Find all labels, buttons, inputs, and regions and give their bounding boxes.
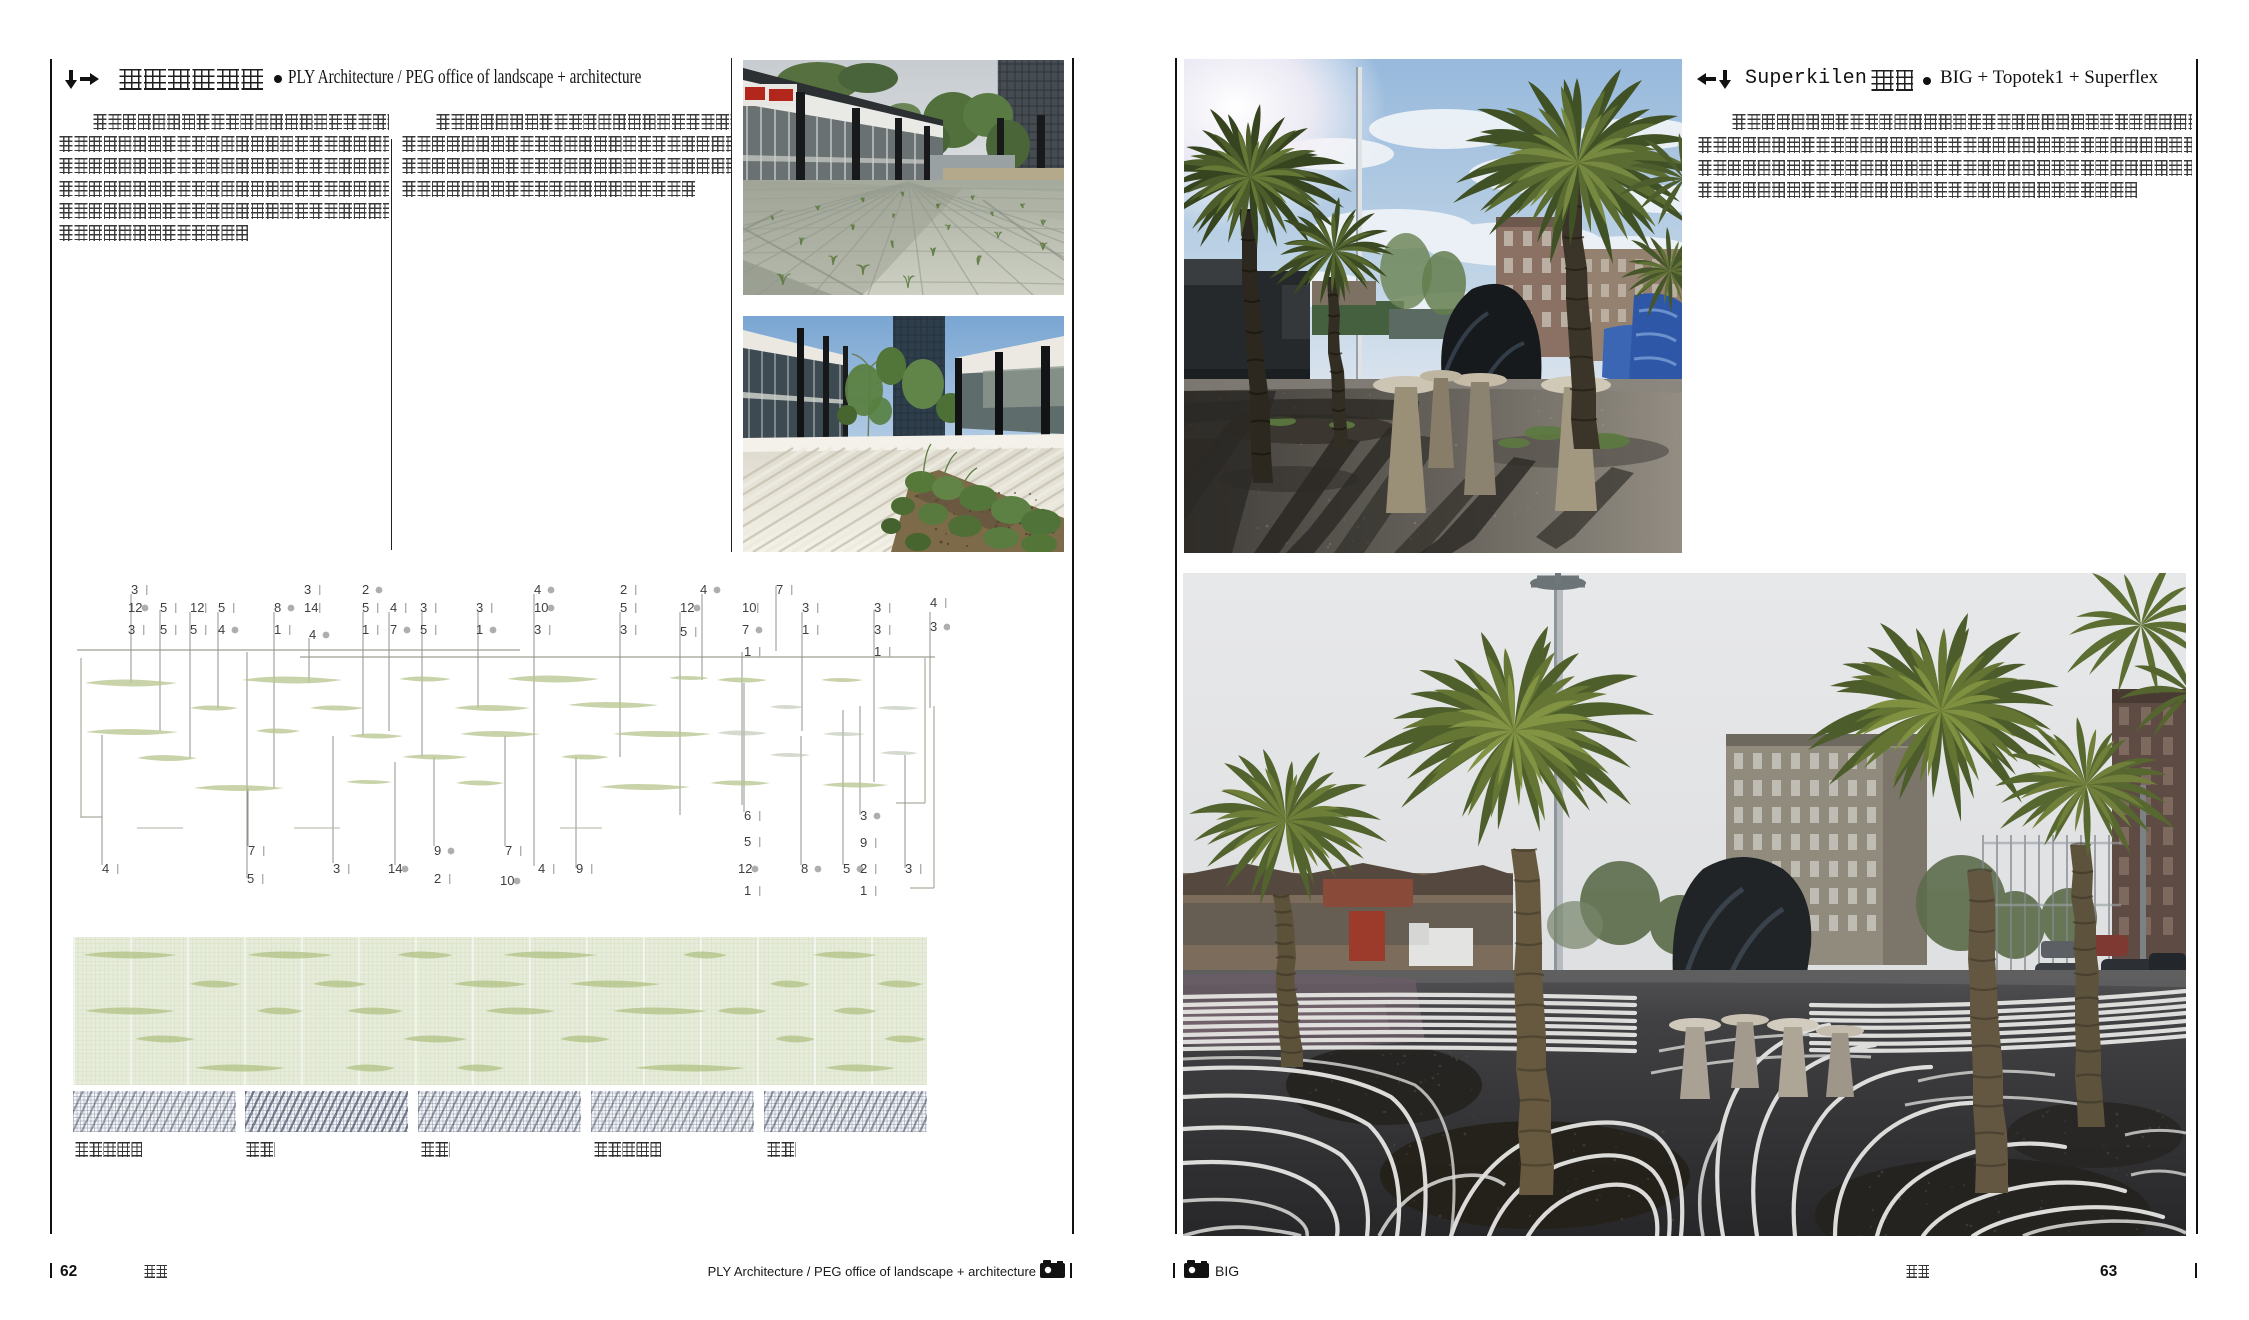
svg-text:1: 1 xyxy=(744,883,751,898)
svg-text:3: 3 xyxy=(620,622,627,637)
svg-text:3: 3 xyxy=(874,622,881,637)
svg-text:7: 7 xyxy=(390,622,397,637)
svg-text:1: 1 xyxy=(744,644,751,659)
svg-text:10: 10 xyxy=(500,873,514,888)
svg-text:9: 9 xyxy=(576,861,583,876)
svg-text:3: 3 xyxy=(128,622,135,637)
svg-text:5: 5 xyxy=(247,871,254,886)
svg-text:4: 4 xyxy=(309,627,316,642)
svg-text:5: 5 xyxy=(744,834,751,849)
svg-text:3: 3 xyxy=(802,600,809,615)
svg-text:3: 3 xyxy=(905,861,912,876)
svg-text:5: 5 xyxy=(680,624,687,639)
svg-text:3: 3 xyxy=(476,600,483,615)
svg-text:1: 1 xyxy=(274,622,281,637)
svg-text:1: 1 xyxy=(860,883,867,898)
svg-text:9: 9 xyxy=(434,843,441,858)
svg-text:1: 1 xyxy=(362,622,369,637)
svg-text:3: 3 xyxy=(860,808,867,823)
svg-text:8: 8 xyxy=(801,861,808,876)
svg-text:2: 2 xyxy=(434,871,441,886)
svg-text:7: 7 xyxy=(776,582,783,597)
svg-text:5: 5 xyxy=(362,600,369,615)
svg-text:14: 14 xyxy=(304,600,318,615)
svg-text:7: 7 xyxy=(742,622,749,637)
svg-text:5: 5 xyxy=(843,861,850,876)
svg-text:2: 2 xyxy=(620,582,627,597)
svg-text:5: 5 xyxy=(160,622,167,637)
svg-text:5: 5 xyxy=(420,622,427,637)
svg-text:14: 14 xyxy=(388,861,402,876)
svg-text:4: 4 xyxy=(930,595,937,610)
svg-text:5: 5 xyxy=(190,622,197,637)
svg-text:5: 5 xyxy=(160,600,167,615)
svg-text:2: 2 xyxy=(860,861,867,876)
svg-text:12: 12 xyxy=(190,600,204,615)
svg-text:12: 12 xyxy=(738,861,752,876)
svg-text:12: 12 xyxy=(128,600,142,615)
svg-text:4: 4 xyxy=(218,622,225,637)
svg-text:8: 8 xyxy=(274,600,281,615)
svg-text:3: 3 xyxy=(420,600,427,615)
svg-text:6: 6 xyxy=(744,808,751,823)
svg-text:3: 3 xyxy=(930,619,937,634)
svg-text:12: 12 xyxy=(680,600,694,615)
svg-text:10: 10 xyxy=(742,600,756,615)
svg-text:7: 7 xyxy=(505,843,512,858)
svg-text:9: 9 xyxy=(860,835,867,850)
svg-text:4: 4 xyxy=(102,861,109,876)
svg-text:4: 4 xyxy=(538,861,545,876)
svg-text:10: 10 xyxy=(534,600,548,615)
svg-text:1: 1 xyxy=(802,622,809,637)
svg-text:5: 5 xyxy=(218,600,225,615)
svg-text:3: 3 xyxy=(304,582,311,597)
svg-text:4: 4 xyxy=(700,582,707,597)
svg-text:3: 3 xyxy=(131,582,138,597)
svg-text:4: 4 xyxy=(534,582,541,597)
svg-text:3: 3 xyxy=(534,622,541,637)
svg-text:5: 5 xyxy=(620,600,627,615)
svg-text:3: 3 xyxy=(333,861,340,876)
svg-text:3: 3 xyxy=(874,600,881,615)
svg-text:1: 1 xyxy=(874,644,881,659)
svg-text:2: 2 xyxy=(362,582,369,597)
svg-text:1: 1 xyxy=(476,622,483,637)
svg-text:7: 7 xyxy=(248,843,255,858)
svg-text:4: 4 xyxy=(390,600,397,615)
